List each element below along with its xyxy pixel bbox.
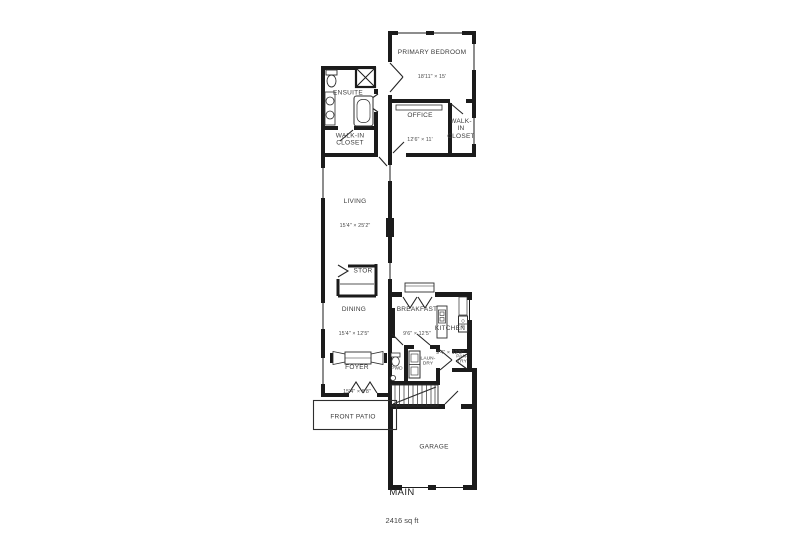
pocket-door-panel — [386, 218, 394, 237]
washer-dryer-icon — [409, 351, 420, 378]
floor-plan-drawing — [0, 0, 800, 533]
shower-icon — [356, 68, 375, 87]
stairs — [391, 385, 438, 406]
fireplace-builtin — [333, 352, 383, 365]
walls-layer — [321, 31, 477, 490]
vanity-sinks-icon — [325, 92, 335, 125]
kitchen-island-cooktop — [437, 306, 447, 338]
front-patio-outline — [314, 401, 397, 430]
toilet-icon — [326, 70, 337, 87]
bathtub-icon — [354, 96, 373, 126]
floor-plan-page: PRIMARY BEDROOM 18'11" × 15' ENSUITE WAL… — [0, 0, 800, 533]
kitchen-sink-peninsula — [405, 283, 434, 292]
counter-oven-icon — [459, 297, 468, 332]
office-interior-window — [396, 105, 442, 110]
